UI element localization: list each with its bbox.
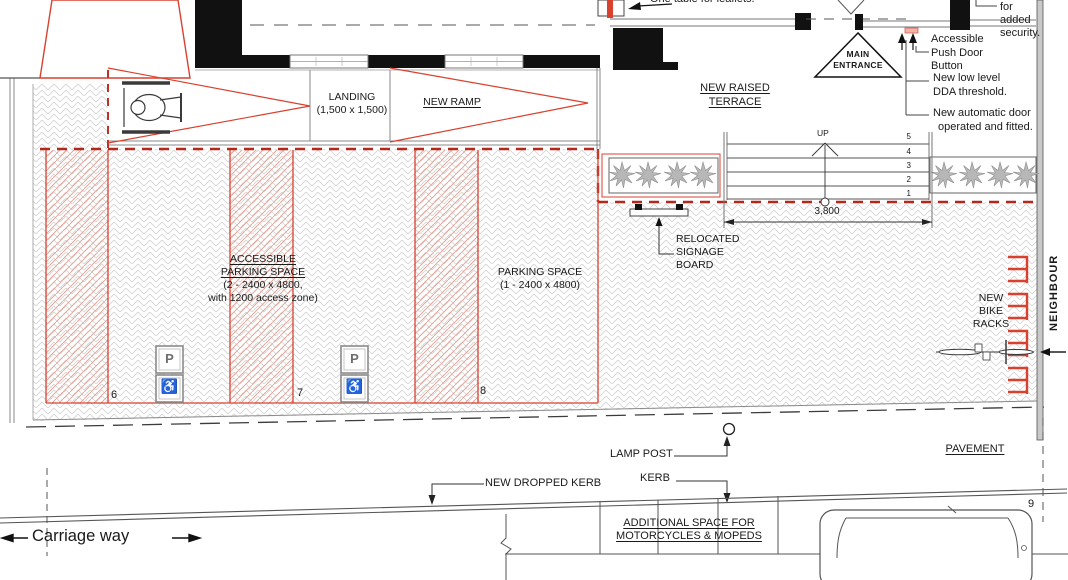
push-button-note: AccessiblePush DoorButton — [931, 33, 984, 74]
new-ramp-label: NEW RAMP — [423, 96, 481, 109]
motorcycle-space-label: ADDITIONAL SPACE FORMOTORCYCLES & MOPEDS — [616, 517, 762, 543]
dimension-label: 3,800 — [814, 206, 839, 217]
carriage-way-label: Carriage way — [32, 527, 129, 546]
step-number-4: 4 — [899, 147, 911, 156]
ramp-arrow-2 — [390, 68, 588, 142]
bay-number-7: 7 — [297, 387, 303, 401]
bike-racks-label: NEWBIKERACKS — [973, 292, 1009, 331]
dropped-kerb-label: NEW DROPPED KERB — [485, 477, 601, 491]
parked-car — [820, 506, 1032, 580]
auto-door-note: New automatic dooroperated and fitted. — [933, 107, 1033, 134]
up-label: UP — [817, 128, 829, 138]
terrace-label: NEW RAISEDTERRACE — [700, 82, 770, 109]
push-door-button — [905, 28, 918, 33]
pavement-label: PAVEMENT — [946, 443, 1005, 457]
leaflet-note: One table for leaflets. — [650, 0, 755, 7]
lamp-post-symbol — [674, 424, 735, 457]
planter-left — [602, 154, 720, 197]
bay-number-9: 9 — [1028, 498, 1034, 512]
landing-label: LANDING(1,500 x 1,500) — [317, 91, 388, 117]
paving-left-strip — [33, 84, 108, 149]
bay-number-6: 6 — [111, 389, 117, 403]
door-swing — [838, 0, 864, 14]
step-number-2: 2 — [899, 175, 911, 184]
bay-number-8: 8 — [480, 385, 486, 399]
planter-right — [930, 157, 1039, 193]
security-note: gatefor addedsecurity. — [1000, 0, 1040, 40]
button-arrows — [898, 33, 917, 50]
wheelchair-sign-icon-7: ♿ — [341, 378, 368, 395]
signage-board-label: RELOCATEDSIGNAGEBOARD — [676, 233, 739, 272]
neighbour-label: NEIGHBOUR — [1048, 255, 1062, 331]
step-number-5: 5 — [899, 132, 911, 141]
parking-sign-p-6: P — [156, 351, 183, 366]
window-strip-2 — [445, 55, 523, 68]
access-zone-hatch-1 — [46, 150, 108, 403]
kerb-label: KERB — [640, 472, 670, 486]
up-arrow — [812, 143, 838, 206]
break-line — [501, 514, 511, 580]
neighbour-arrow — [1040, 348, 1066, 356]
step-number-1: 1 — [899, 189, 911, 198]
main-entrance-label: MAINENTRANCE — [833, 49, 883, 71]
existing-side-ramp — [40, 0, 190, 78]
neighbour-wall — [1037, 0, 1043, 440]
wheelchair-icon — [122, 83, 181, 132]
dda-note: New low levelDDA threshold. — [933, 72, 1007, 99]
wheelchair-sign-icon-6: ♿ — [156, 378, 183, 395]
window-strip-1 — [290, 55, 368, 68]
accessible-parking-label: ACCESSIBLE PARKING SPACE (2 - 2400 x 480… — [208, 253, 318, 305]
site-plan-canvas: One table for leaflets. gatefor addedsec… — [0, 0, 1068, 580]
access-zone-hatch-3 — [415, 150, 478, 403]
parking-sign-p-7: P — [341, 351, 368, 366]
dropped-kerb-leader — [429, 484, 485, 505]
step-number-3: 3 — [899, 161, 911, 170]
red-wall-accent — [607, 0, 613, 18]
standard-parking-label: PARKING SPACE(1 - 2400 x 4800) — [498, 266, 582, 292]
lamp-post-label: LAMP POST — [610, 448, 673, 462]
